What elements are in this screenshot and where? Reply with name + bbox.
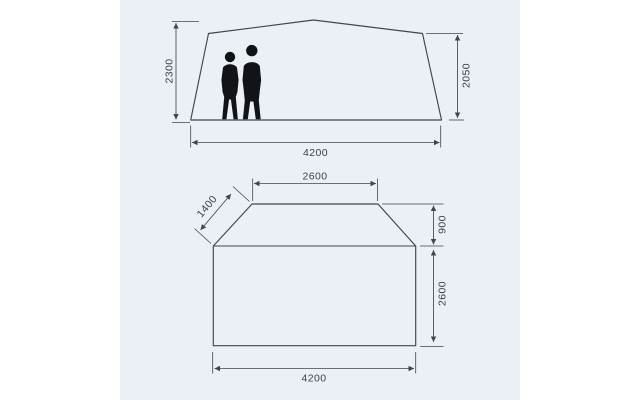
diagram-panel: 2300 2050 4200 (120, 0, 520, 400)
floorplan-width-label: 4200 (302, 373, 327, 385)
dimension-wall-height: 2050 (426, 34, 473, 121)
elevation-width-label: 4200 (303, 147, 328, 159)
side-panel-label: 1400 (195, 193, 220, 220)
front-depth-label: 900 (437, 215, 449, 234)
dimension-floorplan-width: 4200 (213, 352, 416, 385)
dimension-main-depth: 2600 (420, 250, 449, 347)
dimension-front-depth: 900 (382, 204, 449, 246)
main-depth-label: 2600 (437, 281, 449, 306)
peak-height-label: 2300 (164, 59, 176, 84)
front-edge-label: 2600 (303, 171, 328, 183)
wall-height-label: 2050 (461, 63, 473, 88)
man-silhouette (243, 45, 262, 119)
elevation-view: 2300 2050 4200 (164, 20, 473, 159)
tent-footprint-outline (213, 204, 415, 346)
dimension-elevation-width: 4200 (191, 126, 441, 160)
dimension-front-edge: 2600 (253, 171, 378, 202)
tent-dimension-diagram: 2300 2050 4200 (120, 0, 520, 400)
floorplan-view: 2600 1400 900 2600 (195, 171, 449, 385)
woman-silhouette (221, 52, 238, 120)
